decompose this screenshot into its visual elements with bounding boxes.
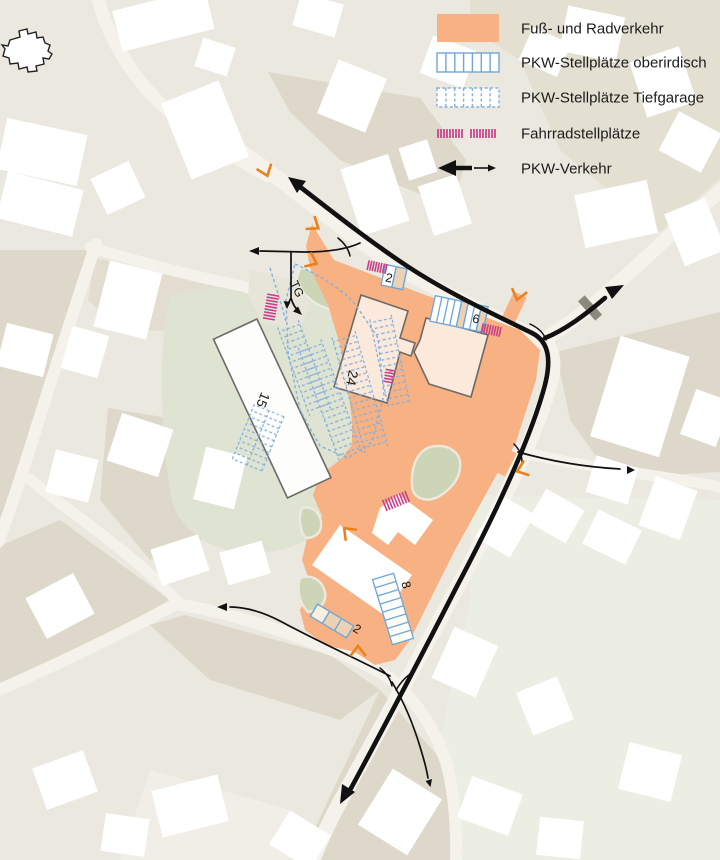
legend-label: Fahrradstellplätze xyxy=(521,126,640,143)
legend-label: Fuß- und Radverkehr xyxy=(521,21,664,38)
legend-item-parking-surface: PKW-Stellplätze oberirdisch xyxy=(437,53,707,72)
map-canvas: 2 6 24 15 8 2 TG Fuß- und Radverkehr PKW… xyxy=(0,0,720,860)
orange-fill-swatch xyxy=(437,14,499,42)
legend-item-parking-underground: PKW-Stellplätze Tiefgarage xyxy=(437,88,704,107)
legend-label: PKW-Stellplätze oberirdisch xyxy=(521,55,707,72)
legend-label: PKW-Verkehr xyxy=(521,161,612,178)
legend-label: PKW-Stellplätze Tiefgarage xyxy=(521,90,704,107)
site-plan-map: 2 6 24 15 8 2 TG Fuß- und Radverkehr PKW… xyxy=(0,0,720,860)
